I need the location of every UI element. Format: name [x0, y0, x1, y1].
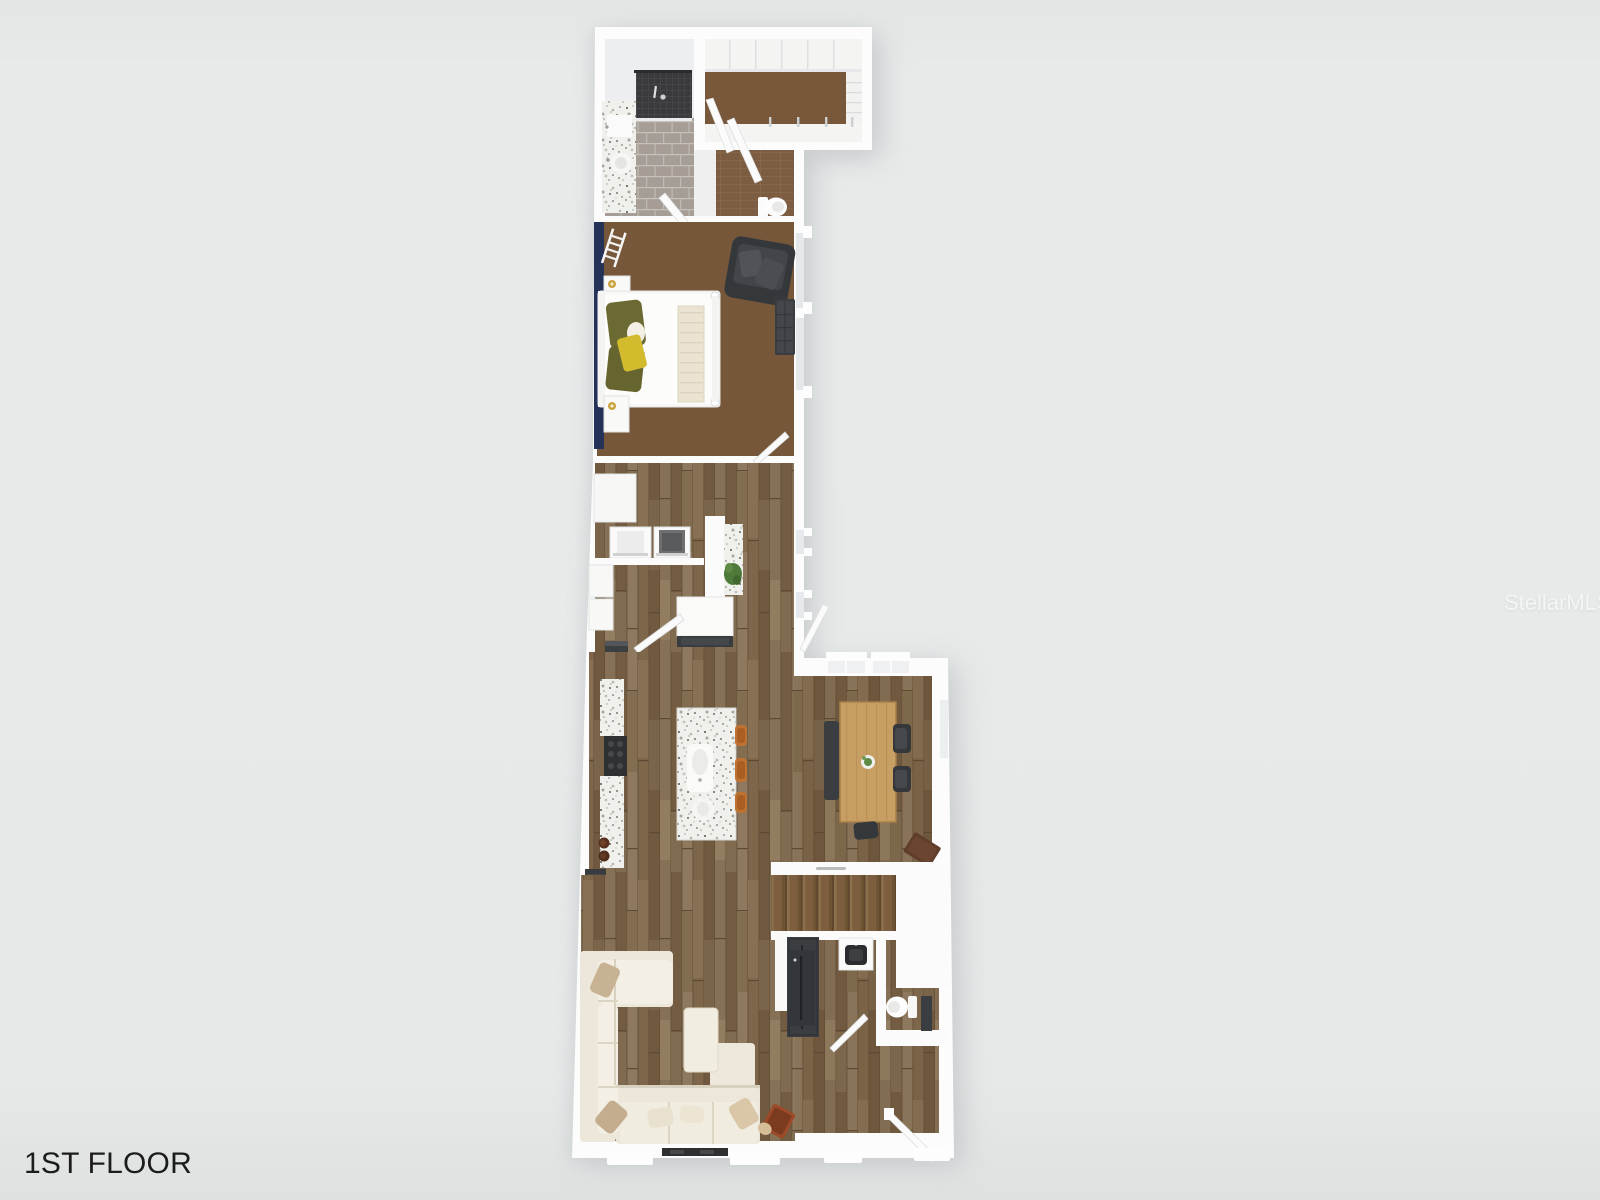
svg-text:StellarMLS: StellarMLS	[1504, 590, 1600, 615]
svg-text:1ST FLOOR: 1ST FLOOR	[24, 1147, 192, 1180]
